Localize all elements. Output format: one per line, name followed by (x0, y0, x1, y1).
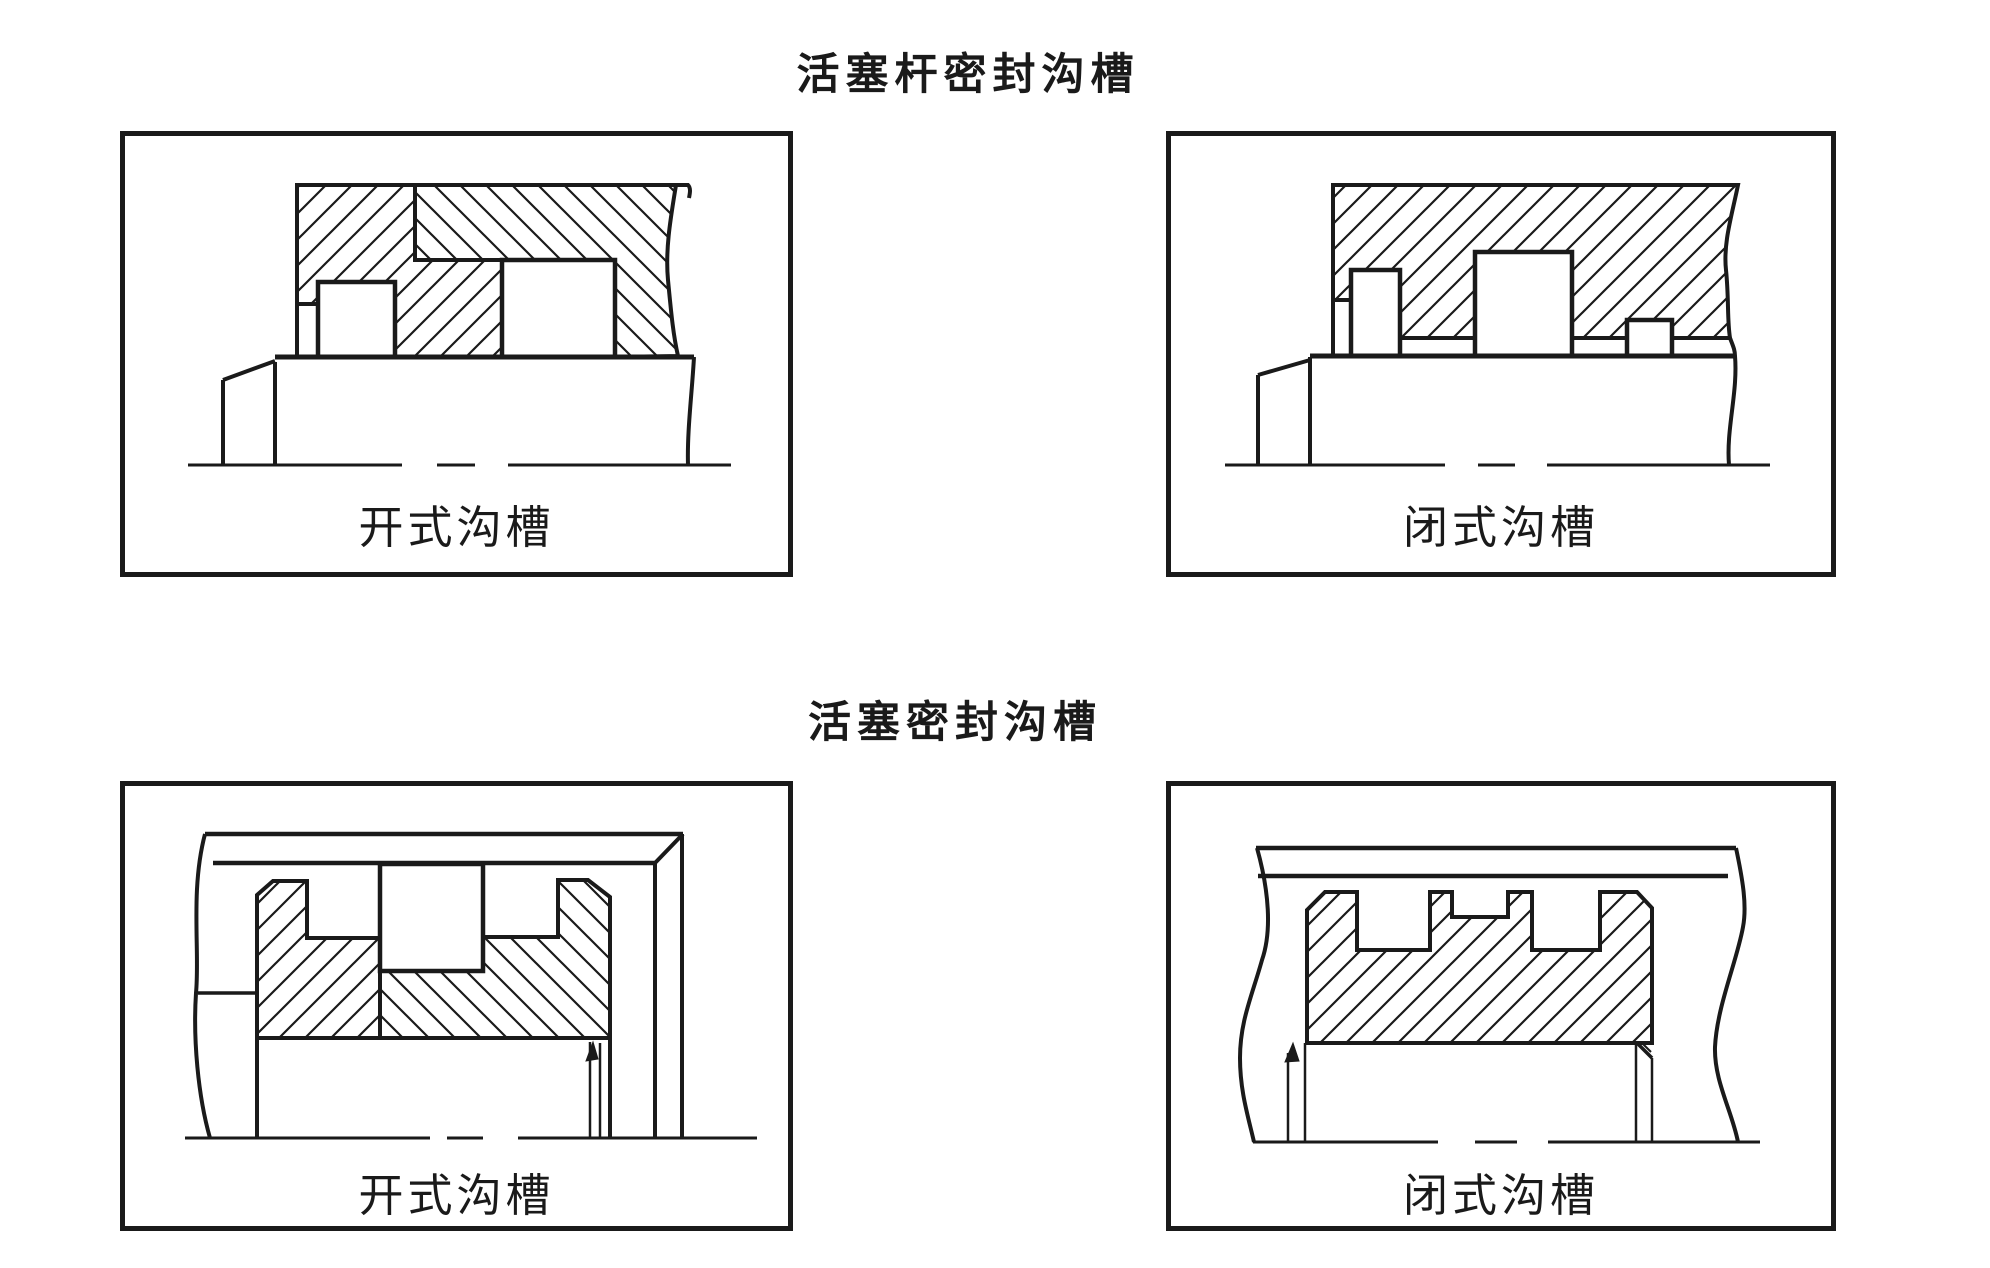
seal-ring (1627, 320, 1672, 356)
title-piston-seal-grooves: 活塞密封沟槽 (605, 688, 1305, 750)
panel-rod-seal-open-groove: 开式沟槽 (120, 131, 793, 577)
panel-piston-seal-closed-groove: 闭式沟槽 (1166, 781, 1836, 1231)
arrow-marker (1285, 1043, 1299, 1062)
title-rod-seal-grooves: 活塞杆密封沟槽 (618, 40, 1318, 102)
panel-caption: 闭式沟槽 (1166, 491, 1836, 556)
seal-ring (1351, 270, 1400, 356)
panel-caption: 开式沟槽 (120, 1159, 793, 1224)
seal-ring (318, 282, 395, 357)
rod-chamfer (1258, 360, 1310, 375)
seal-ring (1475, 252, 1572, 356)
panel-rod-seal-closed-groove: 闭式沟槽 (1166, 131, 1836, 577)
piston-part-hatched (1307, 892, 1652, 1043)
figure-page: 活塞杆密封沟槽 活塞密封沟槽 (0, 0, 1990, 1268)
panel-caption: 开式沟槽 (120, 491, 793, 556)
seal-ring (380, 864, 483, 971)
break-line (195, 834, 210, 1138)
break-line (1715, 848, 1745, 1142)
panel-caption: 闭式沟槽 (1166, 1159, 1836, 1224)
cylinder-corner-bevel (655, 834, 683, 863)
rod-chamfer (223, 361, 275, 380)
panel-piston-seal-open-groove: 开式沟槽 (120, 781, 793, 1231)
break-line (1240, 848, 1268, 1142)
piston-part-hatched (257, 881, 380, 1038)
housing-top-edge-hook (676, 185, 690, 198)
seal-ring (502, 260, 615, 357)
rod-break-edge (688, 357, 694, 465)
arrow-marker (586, 1042, 598, 1061)
